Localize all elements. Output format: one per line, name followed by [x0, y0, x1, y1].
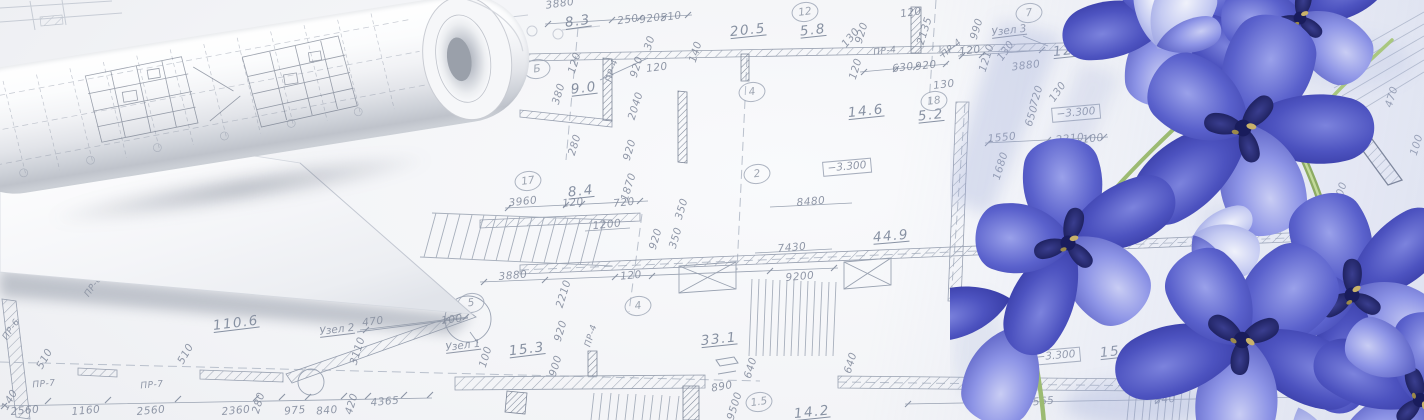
delphinium-flowers	[950, 0, 1424, 420]
blueprint-flower-banner: 8.320.55.89.014.65.28.444.9110.615.333.1…	[0, 0, 1424, 420]
